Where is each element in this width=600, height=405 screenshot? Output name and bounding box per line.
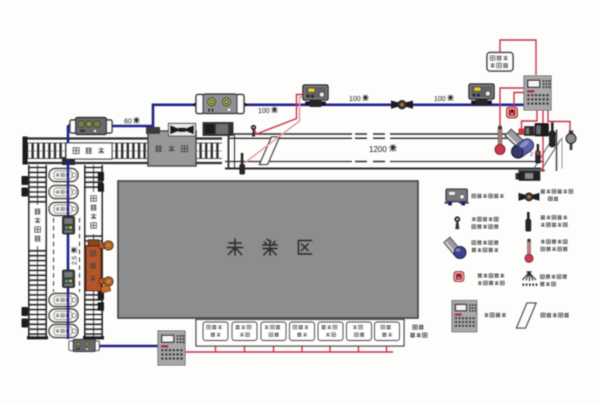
- svg-text:100: 100: [258, 108, 270, 115]
- svg-text:100: 100: [349, 96, 361, 103]
- svg-text:100: 100: [434, 96, 446, 103]
- svg-text:2.5: 2.5: [71, 256, 78, 265]
- svg-text:60: 60: [124, 119, 132, 126]
- svg-text:1200: 1200: [369, 145, 387, 154]
- svg-text:2: 2: [530, 152, 533, 158]
